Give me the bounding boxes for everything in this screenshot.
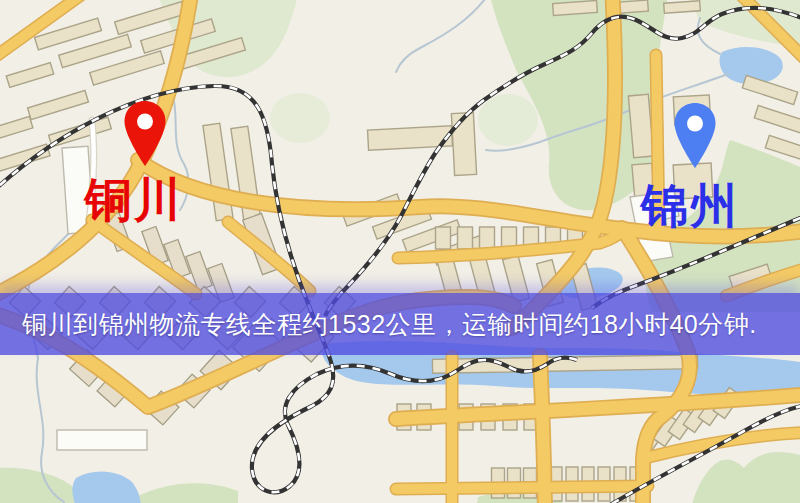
origin-pin-shape	[125, 101, 166, 166]
map-canvas	[0, 0, 800, 503]
destination-pin-shape	[675, 103, 716, 168]
route-info-banner: 铜川到锦州物流专线全程约1532公里，运输时间约18小时40分钟.	[0, 293, 800, 355]
destination-city-label: 锦州	[641, 182, 739, 229]
origin-city-label: 铜川	[85, 176, 183, 223]
origin-pin-icon	[122, 100, 168, 168]
route-info-text: 铜川到锦州物流专线全程约1532公里，运输时间约18小时40分钟.	[0, 308, 757, 341]
destination-pin-icon	[672, 102, 718, 170]
route-map-image: 铜川 锦州 铜川到锦州物流专线全程约1532公里，运输时间约18小时40分钟.	[0, 0, 800, 503]
